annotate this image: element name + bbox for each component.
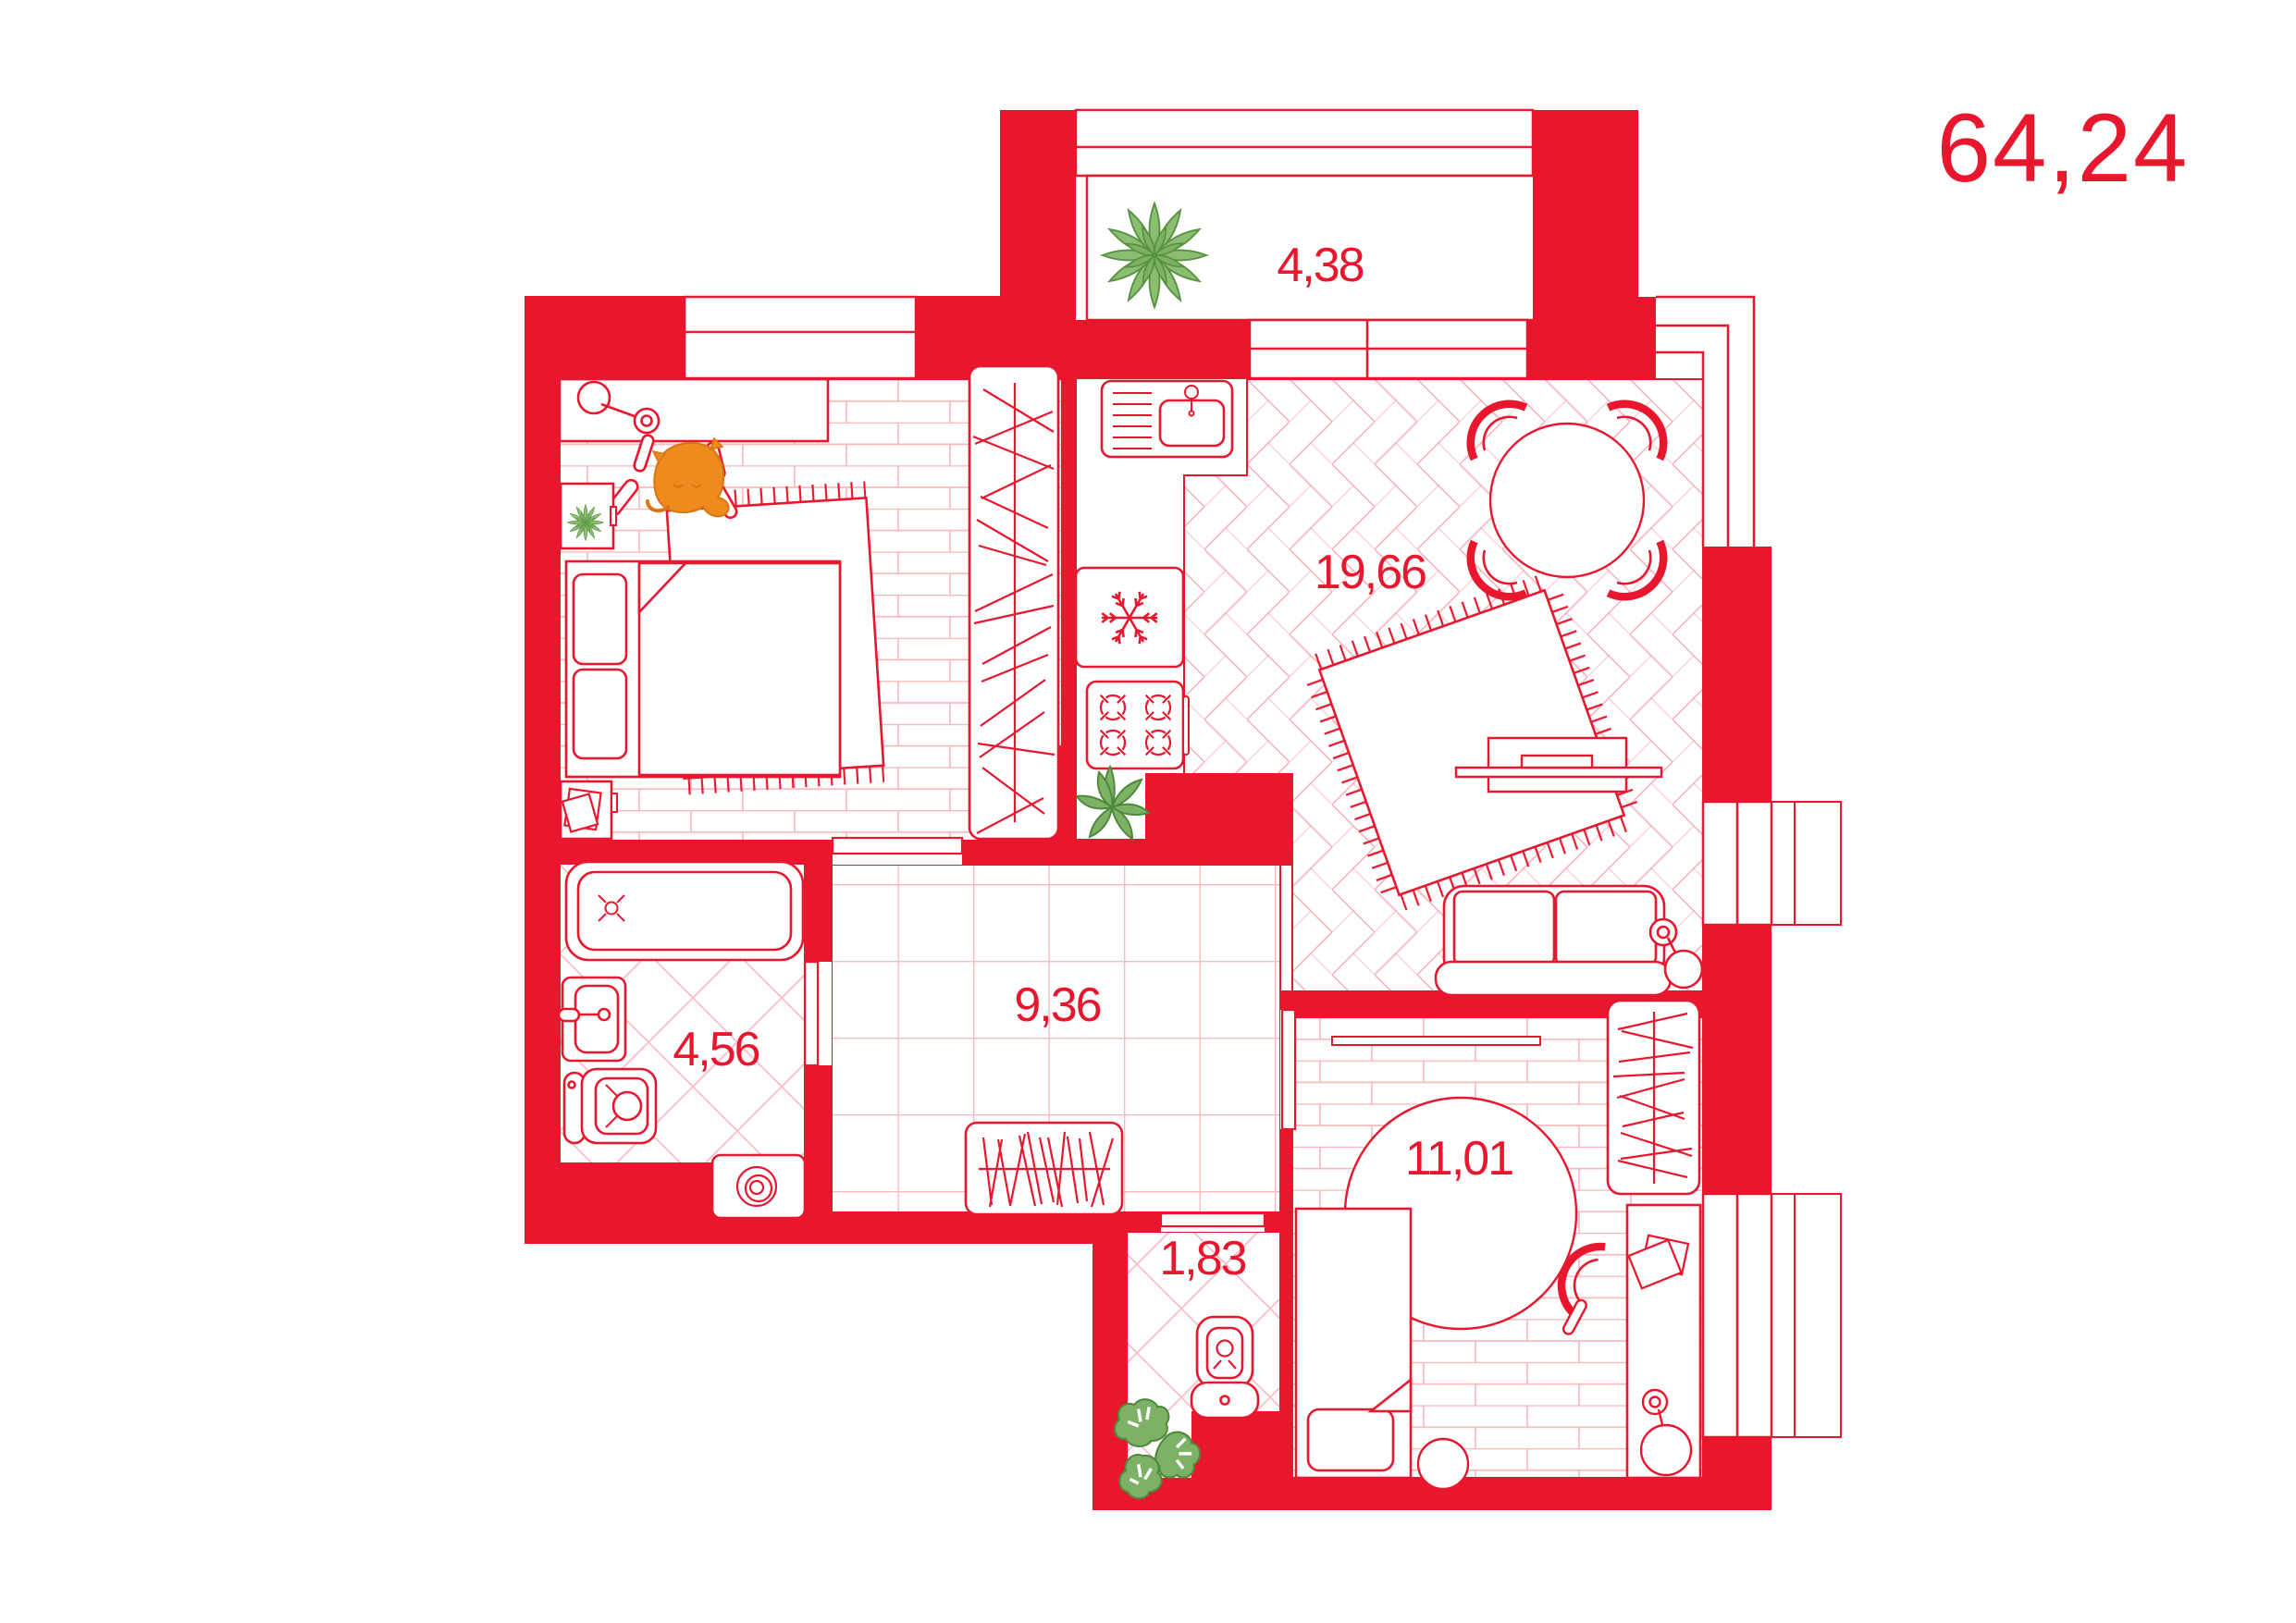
svg-text:19,66: 19,66: [1315, 546, 1426, 599]
svg-text:4,56: 4,56: [673, 1023, 759, 1076]
svg-text:1,83: 1,83: [1159, 1232, 1245, 1285]
svg-text:64,24: 64,24: [1937, 94, 2190, 203]
svg-text:11,01: 11,01: [1405, 1132, 1512, 1186]
svg-text:4,38: 4,38: [1277, 239, 1363, 292]
svg-text:9,36: 9,36: [1014, 978, 1100, 1032]
